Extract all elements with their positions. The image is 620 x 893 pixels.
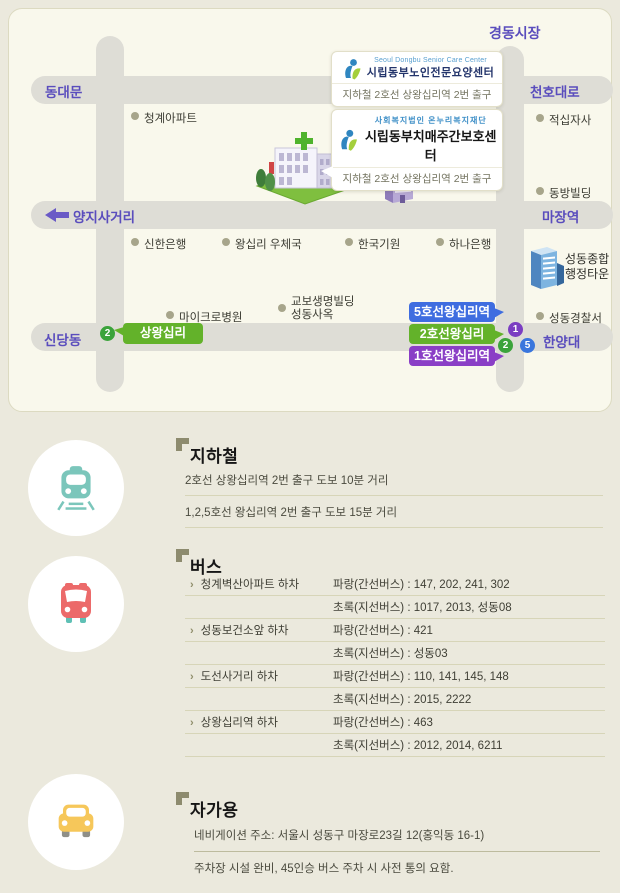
poi-red-cross: 적십자사 [536, 112, 591, 128]
map-label-cheonho-daero: 천호대로 [530, 81, 580, 101]
subway-info-line: 2호선 상왕십리역 2번 출구 도보 10분 거리 [185, 464, 603, 496]
poi-dot-icon [436, 238, 444, 246]
poi-kyobo-bldg: 교보생명빌딩성동사옥 [278, 296, 354, 322]
poi-hana-bank: 하나은행 [436, 236, 491, 252]
map-label-dongdaemun: 동대문 [45, 81, 82, 101]
section-corner-icon [176, 792, 189, 805]
poi-hanguk-giwon: 한국기원 [345, 236, 400, 252]
bus-row: 초록(지선버스) : 1017, 2013, 성동08 [185, 596, 605, 619]
poi-dot-icon [536, 114, 544, 122]
map-label-sindang-dong: 신당동 [44, 329, 81, 349]
poi-dot-icon [345, 238, 353, 246]
station-badge-line5-wangsimni: 5호선왕십리역 [409, 302, 495, 322]
car-nav-address: 네비게이션 주소: 서울시 성동구 마장로23길 12(홍익동 16-1) [194, 820, 600, 852]
row-arrow-icon: › [190, 671, 194, 683]
bus-row: 초록(지선버스) : 2015, 2222 [185, 688, 605, 711]
care-center-info-box: Seoul Dongbu Senior Care Center 시립동부노인전문… [331, 51, 503, 107]
subway-icon-circle [28, 440, 124, 536]
bus-icon [52, 579, 100, 629]
poi-dot-icon [166, 311, 174, 319]
poi-dot-icon [278, 304, 286, 312]
map-label-yangji-sageori: 양지사거리 [73, 206, 135, 226]
subway-info-list: 2호선 상왕십리역 2번 출구 도보 10분 거리 1,2,5호선 왕십리역 2… [185, 464, 603, 528]
care-center-en-name: Seoul Dongbu Senior Care Center [367, 57, 494, 64]
bus-row: 초록(지선버스) : 성동03 [185, 642, 605, 665]
poi-cheonggye-apt: 청계아파트 [131, 110, 197, 126]
car-section-title: 자가용 [190, 796, 238, 821]
left-arrow-icon [45, 208, 69, 222]
car-parking-note: 주차장 시설 완비, 45인승 버스 주차 시 사전 통의 요함. [194, 852, 600, 884]
station-badge-line1-wangsimni: 1호선왕십리역 [409, 346, 495, 366]
bus-row: 초록(지선버스) : 2012, 2014, 6211 [185, 734, 605, 757]
poi-dot-icon [131, 238, 139, 246]
care-center-logo-icon [340, 58, 362, 80]
station-badge-line2-wangsimni: 2호선왕십리 [409, 324, 495, 344]
poi-dot-icon [536, 312, 544, 320]
map-label-majang-station: 마장역 [542, 206, 579, 226]
subway-info-line: 1,2,5호선 왕십리역 2번 출구 도보 15분 거리 [185, 496, 603, 528]
bus-row: ›도선사거리 하차 파랑(간선버스) : 110, 141, 145, 148 [185, 665, 605, 688]
daycare-foundation-name: 사회복지법인 온누리복지재단 [363, 115, 498, 126]
daycare-center-kr-name: 시립동부치매주간보호센터 [363, 126, 498, 164]
line2-number-circle-sangwangsimni: 2 [100, 326, 115, 341]
bus-row: ›상왕십리역 하차 파랑(간선버스) : 463 [185, 711, 605, 734]
line1-number-circle: 1 [508, 322, 523, 337]
poi-dot-icon [222, 238, 230, 246]
line5-number-circle: 5 [520, 338, 535, 353]
admin-town-building-icon [527, 245, 565, 291]
car-icon [50, 799, 102, 845]
car-info-list: 네비게이션 주소: 서울시 성동구 마장로23길 12(홍익동 16-1) 주차… [194, 820, 600, 884]
row-arrow-icon: › [190, 717, 194, 729]
care-center-kr-name: 시립동부노인전문요양센터 [367, 64, 494, 80]
poi-wangsimni-post: 왕십리 우체국 [222, 236, 302, 252]
poi-dot-icon [131, 112, 139, 120]
poi-shinhan-bank: 신한은행 [131, 236, 186, 252]
bus-row: ›성동보건소앞 하차 파랑(간선버스) : 421 [185, 619, 605, 642]
map-label-gyeongdong-market: 경동시장 [489, 23, 541, 43]
directions-page: 경동시장 동대문 천호대로 양지사거리 마장역 신당동 한양대 청계아파트 적십… [0, 0, 620, 893]
bus-routes-table: ›청계벽산아파트 하차 파랑(간선버스) : 147, 202, 241, 30… [185, 573, 605, 757]
poi-dot-icon [536, 187, 544, 195]
row-arrow-icon: › [190, 625, 194, 637]
row-arrow-icon: › [190, 579, 194, 591]
poi-seongdong-police: 성동경찰서 [536, 310, 602, 326]
bus-row: ›청계벽산아파트 하차 파랑(간선버스) : 147, 202, 241, 30… [185, 573, 605, 596]
map-label-hanyang-univ: 한양대 [543, 331, 580, 351]
section-corner-icon [176, 438, 189, 451]
poi-dongbang-bldg: 동방빌딩 [536, 185, 591, 201]
admin-town-label: 성동종합행정타운 [565, 252, 609, 282]
daycare-center-logo-icon [336, 128, 358, 152]
bus-icon-circle [28, 556, 124, 652]
station-badge-sangwangsimni: 상왕십리 [123, 323, 203, 344]
location-map: 경동시장 동대문 천호대로 양지사거리 마장역 신당동 한양대 청계아파트 적십… [8, 8, 612, 412]
car-icon-circle [28, 774, 124, 870]
daycare-center-info-box: 사회복지법인 온누리복지재단 시립동부치매주간보호센터 지하철 2호선 상왕십리… [331, 109, 503, 191]
care-center-exit-info: 지하철 2호선 상왕십리역 2번 출구 [332, 83, 502, 106]
section-corner-icon [176, 549, 189, 562]
train-icon [51, 462, 101, 514]
daycare-center-exit-info: 지하철 2호선 상왕십리역 2번 출구 [332, 167, 502, 190]
subway-section-header: 지하철 [176, 438, 238, 467]
line2-number-circle: 2 [498, 338, 513, 353]
car-section-header: 자가용 [176, 792, 238, 821]
